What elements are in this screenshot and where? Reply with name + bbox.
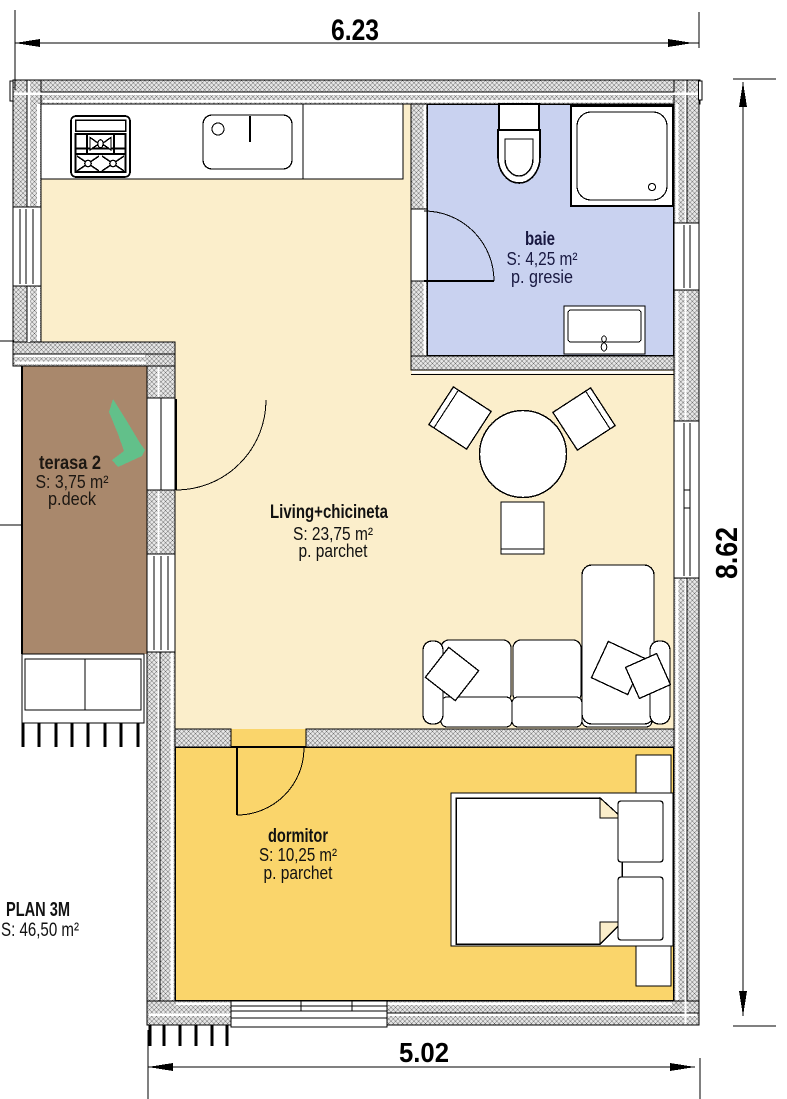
svg-text:6.23: 6.23 <box>331 14 379 47</box>
svg-text:Living+chicineta: Living+chicineta <box>270 502 388 523</box>
svg-text:dormitor: dormitor <box>268 826 328 847</box>
svg-text:baie: baie <box>525 229 555 250</box>
svg-text:p.deck: p.deck <box>48 489 97 509</box>
svg-text:p. parchet: p. parchet <box>264 863 333 883</box>
svg-text:S: 10,25 m²: S: 10,25 m² <box>259 845 337 865</box>
svg-text:S: 4,25 m²: S: 4,25 m² <box>507 249 578 269</box>
svg-text:terasa 2: terasa 2 <box>39 453 101 474</box>
svg-text:PLAN 3M: PLAN 3M <box>6 899 70 921</box>
svg-text:8.62: 8.62 <box>709 527 744 579</box>
svg-text:p. gresie: p. gresie <box>511 267 573 287</box>
svg-text:p. parchet: p. parchet <box>299 541 368 561</box>
svg-text:S: 46,50 m²: S: 46,50 m² <box>1 920 79 941</box>
svg-text:5.02: 5.02 <box>399 1037 449 1068</box>
